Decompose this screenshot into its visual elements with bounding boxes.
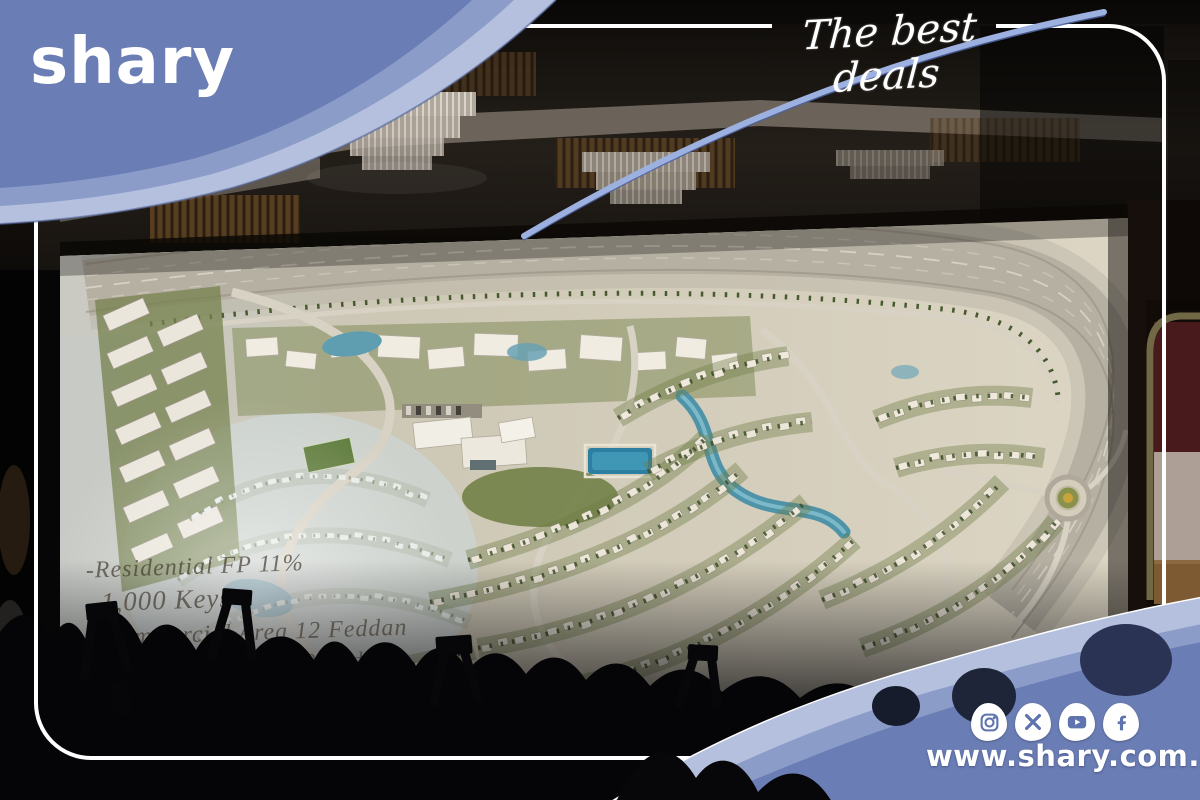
promo-poster: -Residential FP 11% -1,000 Keys -Commerc… (0, 0, 1200, 800)
event-photo-scene: -Residential FP 11% -1,000 Keys -Commerc… (0, 0, 1200, 800)
youtube-icon[interactable] (1059, 703, 1095, 741)
x-twitter-icon[interactable] (1015, 703, 1051, 741)
tagline-script: The best deals (757, 3, 1019, 105)
social-icons-row (971, 703, 1139, 741)
website-url[interactable]: www.shary.com.eg (926, 739, 1182, 773)
brand-logo: shary (30, 30, 235, 94)
roundabout (1047, 477, 1089, 519)
chandelier (836, 150, 944, 179)
instagram-icon[interactable] (971, 703, 1007, 741)
facebook-icon[interactable] (1103, 703, 1139, 741)
